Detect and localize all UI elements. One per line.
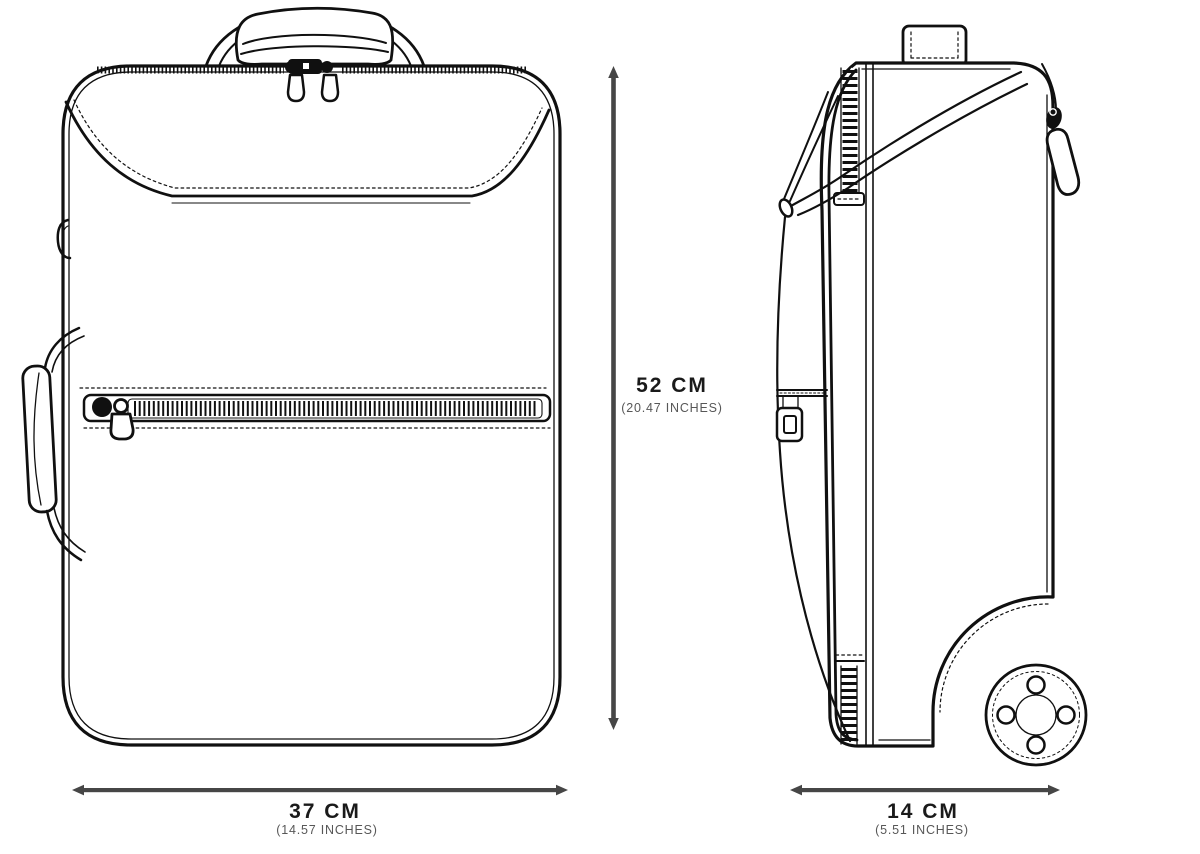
- height-dimension-line: [608, 66, 619, 730]
- arrowhead-up: [608, 66, 619, 78]
- side-view-drawing: [777, 26, 1086, 765]
- width-dimension-line: [72, 785, 568, 796]
- technical-drawing: [0, 0, 1200, 854]
- zipper-slider-ring: [115, 400, 128, 413]
- zipper-slider-left: [285, 61, 297, 73]
- buckle-connector: [783, 396, 798, 408]
- wheel-bolt: [1028, 737, 1045, 754]
- handle-grip: [236, 8, 392, 64]
- width-dimension-value: 37 CM: [245, 800, 405, 824]
- wheel-bolt: [1028, 677, 1045, 694]
- zipper-slider-body: [92, 397, 112, 417]
- wheel-bolt: [998, 707, 1015, 724]
- zipper-slider-right: [321, 61, 333, 73]
- zipper-garage-notch: [303, 63, 309, 69]
- arrowhead-left: [72, 785, 84, 796]
- side-top-handle-outline: [903, 26, 966, 66]
- buckle-frame: [777, 408, 802, 441]
- zipper-pull-left: [288, 75, 304, 101]
- height-dimension-value: 52 CM: [588, 374, 756, 398]
- width-dimension-inches: (14.57 INCHES): [247, 823, 407, 837]
- depth-dimension-value: 14 CM: [843, 800, 1003, 824]
- dimension-line: [82, 788, 558, 792]
- dimension-line: [800, 788, 1050, 792]
- arrowhead-down: [608, 718, 619, 730]
- depth-dimension-inches: (5.51 INCHES): [842, 823, 1002, 837]
- arrowhead-right: [1048, 785, 1060, 796]
- zipper-pull-tab: [111, 414, 133, 439]
- wheel-bolt: [1058, 707, 1075, 724]
- backpack-dimension-diagram: 52 CM (20.47 INCHES) 37 CM (14.57 INCHES…: [0, 0, 1200, 854]
- side-handle-grip: [22, 365, 57, 512]
- top-carry-handle: [206, 8, 424, 66]
- strap-ring: [777, 198, 795, 219]
- side-top-handle: [903, 26, 966, 66]
- height-dimension-inches: (20.47 INCHES): [588, 401, 756, 415]
- side-buckle: [777, 390, 827, 441]
- arrowhead-right: [556, 785, 568, 796]
- arrowhead-left: [790, 785, 802, 796]
- dimension-line: [611, 76, 616, 720]
- depth-dimension-line: [790, 785, 1060, 796]
- zipper-pull-right: [322, 75, 338, 101]
- front-view-drawing: [22, 8, 560, 745]
